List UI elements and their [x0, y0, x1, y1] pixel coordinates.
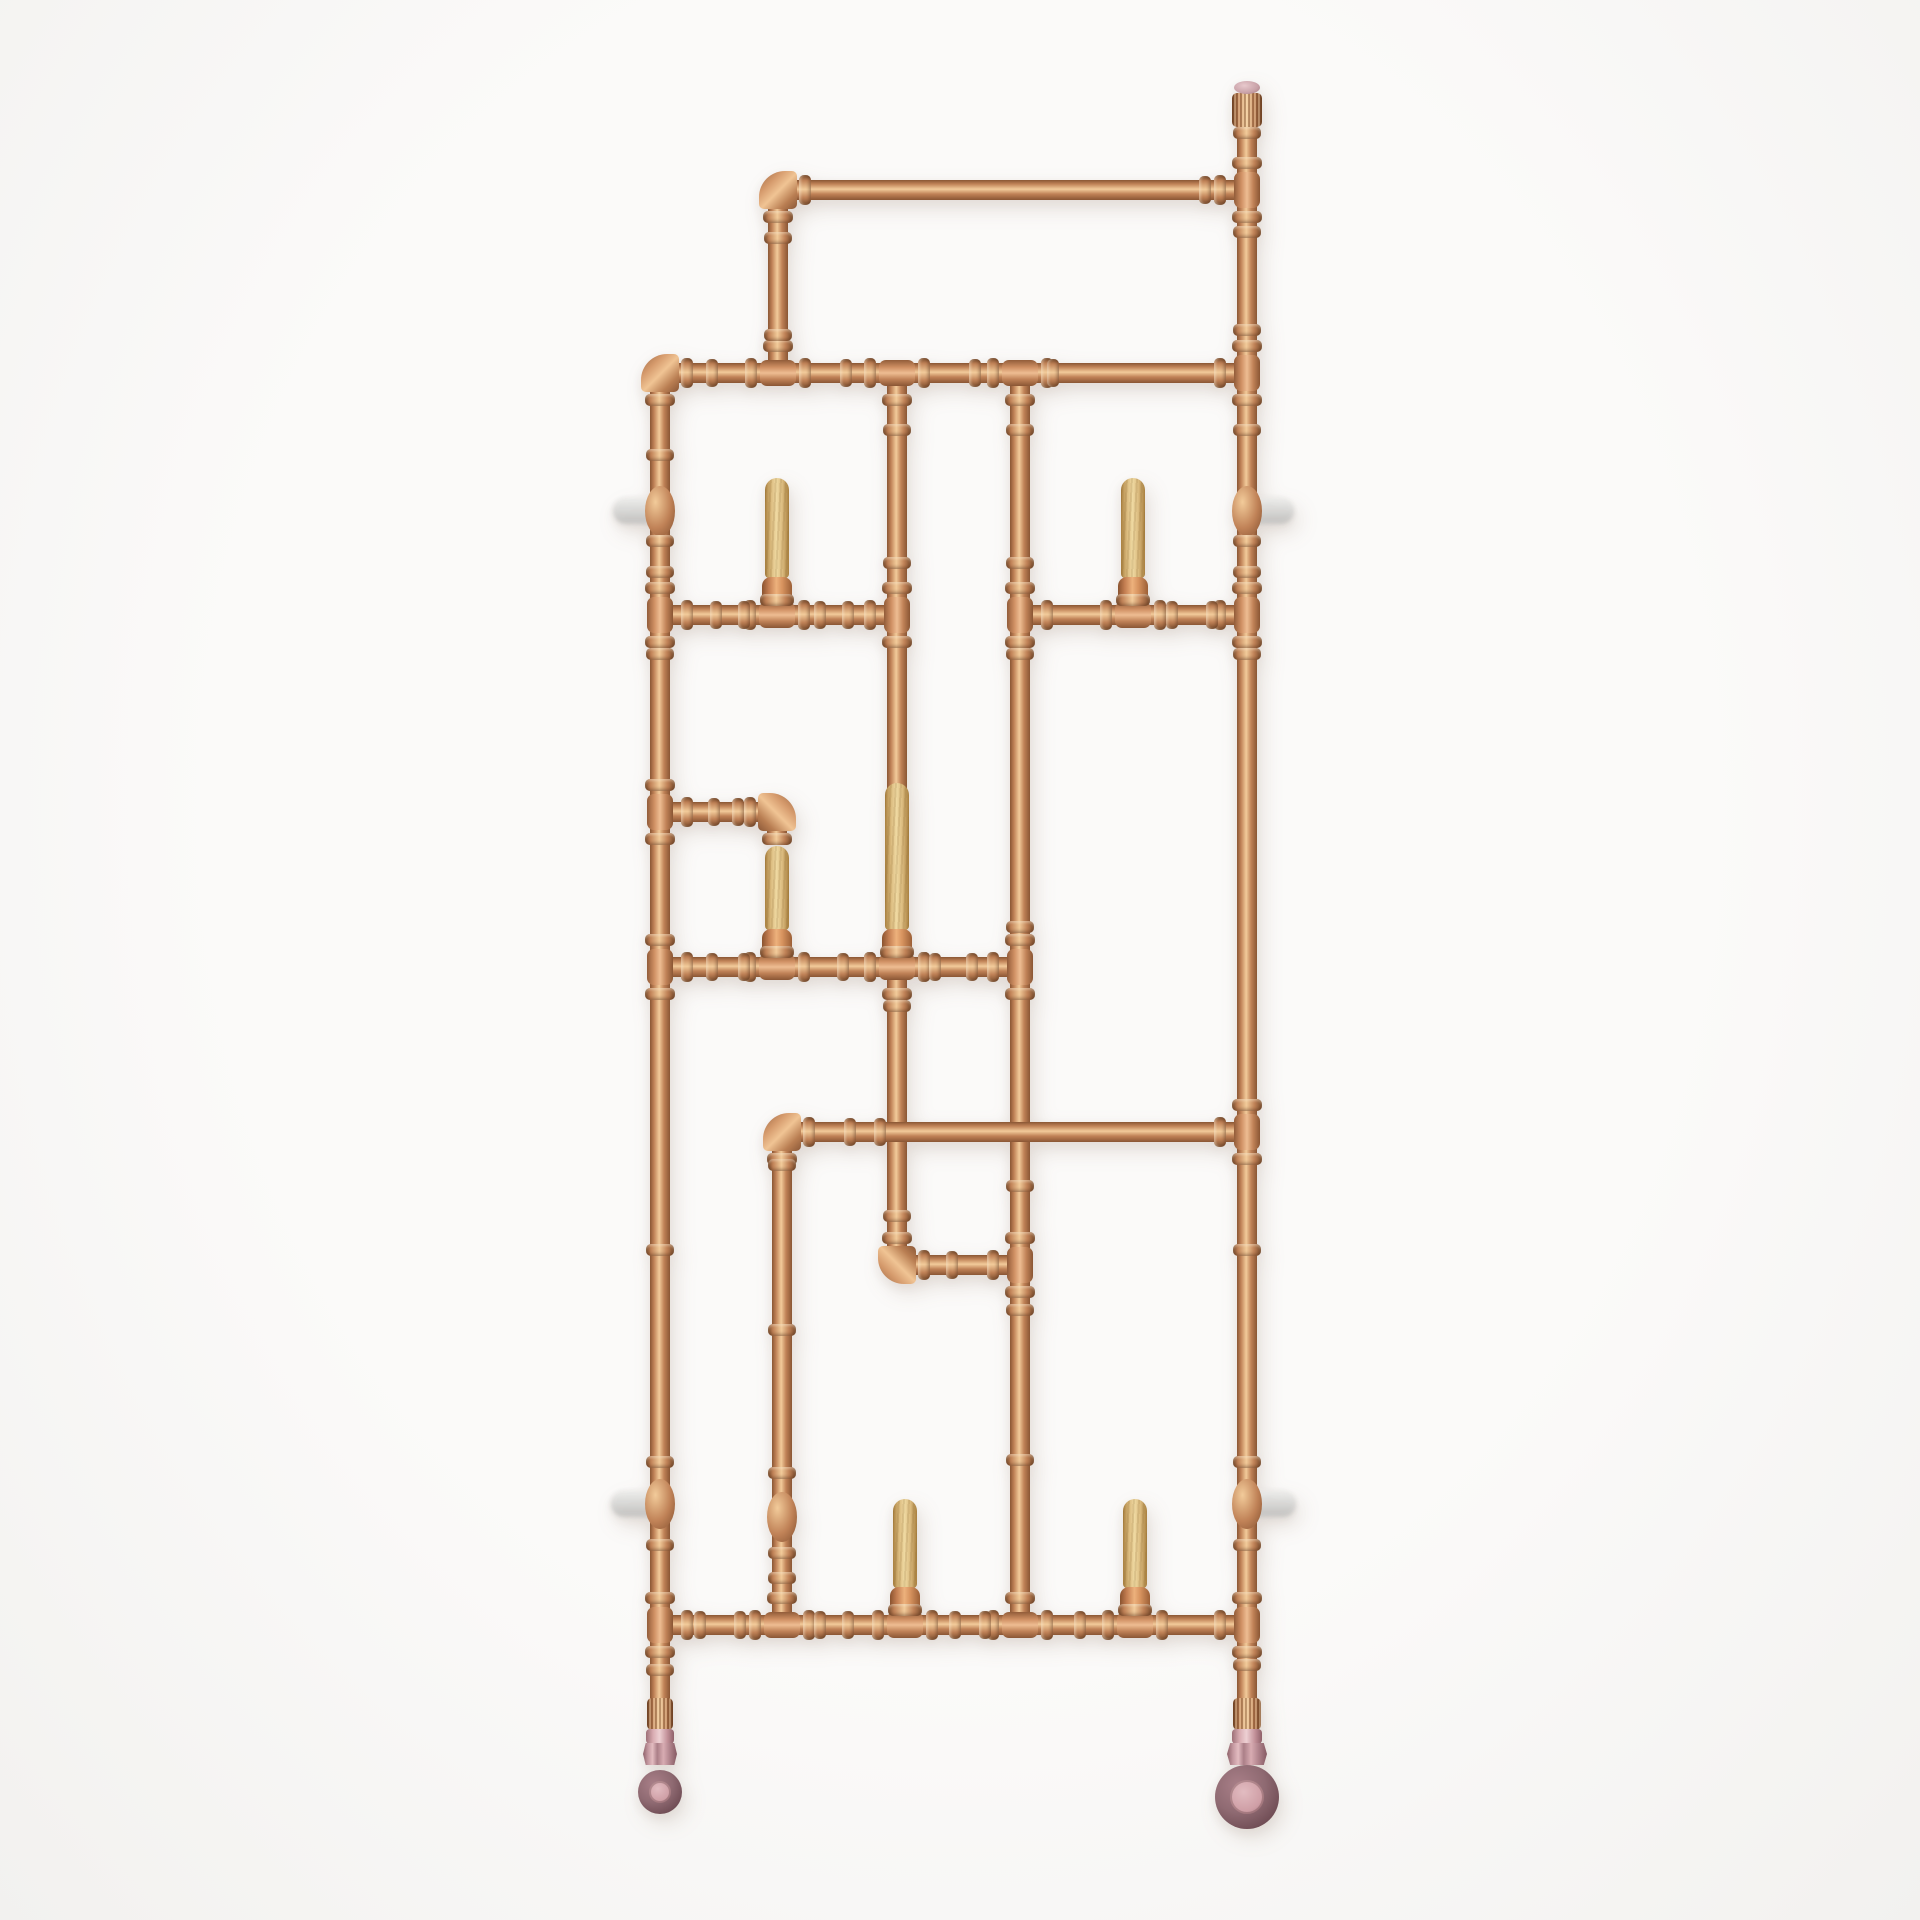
press-coupler [842, 1611, 854, 1639]
press-coupler [768, 1467, 796, 1479]
press-coupler [1233, 648, 1261, 660]
press-coupler [1006, 648, 1034, 660]
press-coupler [969, 359, 981, 387]
press-fitting-ring [882, 394, 912, 406]
press-fitting-ring [1214, 1610, 1226, 1640]
press-fitting-ring [1214, 1117, 1226, 1147]
pipe-elbow [641, 354, 679, 392]
pipe-tee [1007, 597, 1033, 633]
press-fitting-ring [681, 797, 693, 827]
press-fitting-ring [882, 1232, 912, 1244]
press-coupler [1233, 1456, 1261, 1468]
press-coupler [646, 449, 674, 461]
press-fitting-ring [749, 1610, 761, 1640]
press-fitting-ring [762, 833, 792, 845]
pipe-tee [647, 1607, 673, 1643]
press-fitting-ring [763, 211, 793, 223]
caster-collar [646, 1729, 674, 1744]
press-fitting-ring [1005, 582, 1035, 594]
press-coupler [1233, 127, 1261, 139]
press-coupler [883, 1000, 911, 1012]
press-fitting-ring [799, 358, 811, 388]
press-coupler [1006, 1454, 1034, 1466]
pipe-tee [879, 360, 915, 386]
press-fitting-ring [864, 952, 876, 982]
press-coupler [883, 557, 911, 569]
pipe-tee [764, 1612, 800, 1638]
press-coupler [706, 359, 718, 387]
press-coupler [710, 601, 722, 629]
press-coupler [1166, 601, 1178, 629]
caster-stem [647, 1698, 673, 1730]
press-coupler [837, 953, 849, 981]
press-coupler [842, 601, 854, 629]
press-fitting-ring [1005, 636, 1035, 648]
press-coupler [738, 953, 750, 981]
peg-socket-ring [1118, 1604, 1152, 1616]
pipe-end-cap [1234, 81, 1260, 94]
pipe-tee [1234, 1114, 1260, 1150]
press-coupler [883, 424, 911, 436]
press-fitting-ring [744, 797, 756, 827]
press-fitting-ring [1005, 1232, 1035, 1244]
press-fitting-ring [1232, 1153, 1262, 1165]
press-fitting-ring [1232, 1099, 1262, 1111]
press-fitting-ring [1214, 358, 1226, 388]
pipe-elbow [759, 171, 797, 209]
press-coupler [1233, 1539, 1261, 1551]
pipe-tee [647, 949, 673, 985]
press-coupler [1006, 557, 1034, 569]
press-fitting-ring [882, 582, 912, 594]
press-coupler [979, 1611, 991, 1639]
press-fitting-ring [767, 1592, 797, 1604]
press-coupler [946, 1251, 958, 1279]
press-fitting-ring [1232, 394, 1262, 406]
press-coupler [646, 1664, 674, 1676]
wooden-peg [1121, 478, 1145, 578]
pipe-tee [1007, 949, 1033, 985]
press-coupler [768, 1547, 796, 1559]
pipe-tee [1234, 172, 1260, 208]
press-fitting-ring [1156, 1610, 1168, 1640]
pipe-tee [760, 360, 796, 386]
press-coupler [1233, 424, 1261, 436]
caster-hub [649, 1781, 671, 1803]
press-fitting-ring [681, 600, 693, 630]
press-fitting-ring [1232, 636, 1262, 648]
pipe-tee [647, 597, 673, 633]
press-fitting-ring [645, 582, 675, 594]
press-fitting-ring [645, 636, 675, 648]
press-coupler [1006, 424, 1034, 436]
press-fitting-ring [1214, 175, 1226, 205]
press-coupler [734, 1611, 746, 1639]
press-coupler [646, 1244, 674, 1256]
press-fitting-ring [645, 988, 675, 1000]
press-fitting-ring [1005, 1286, 1035, 1298]
pipe-elbow [763, 1113, 801, 1151]
press-coupler [646, 1539, 674, 1551]
press-fitting-ring [1232, 1646, 1262, 1658]
press-fitting-ring [681, 358, 693, 388]
press-fitting-ring [681, 1610, 693, 1640]
pipe-tee [1007, 1247, 1033, 1283]
press-fitting-ring [763, 340, 793, 352]
press-fitting-ring [1232, 582, 1262, 594]
wooden-peg [765, 478, 789, 578]
press-fitting-ring [1005, 394, 1035, 406]
press-fitting-ring [645, 1592, 675, 1604]
press-fitting-ring [1232, 1592, 1262, 1604]
press-fitting-ring [918, 1250, 930, 1280]
press-fitting-ring [1005, 988, 1035, 1000]
press-coupler [768, 1572, 796, 1584]
press-fitting-ring [926, 1610, 938, 1640]
wooden-peg [893, 1499, 917, 1588]
press-fitting-ring [918, 358, 930, 388]
press-coupler [646, 1456, 674, 1468]
pipe-tee [884, 597, 910, 633]
press-coupler [1233, 535, 1261, 547]
press-fitting-ring [987, 1250, 999, 1280]
press-coupler [814, 1611, 826, 1639]
product-photo [0, 0, 1920, 1920]
press-fitting-ring [872, 1610, 884, 1640]
press-coupler [646, 648, 674, 660]
press-coupler [929, 953, 941, 981]
pipe-tee [1002, 360, 1038, 386]
press-fitting-ring [864, 600, 876, 630]
peg-socket-ring [760, 594, 794, 606]
press-fitting-ring [681, 952, 693, 982]
pipe-tee [1234, 1607, 1260, 1643]
press-coupler [1233, 226, 1261, 238]
wooden-peg [765, 846, 789, 930]
caster-collar [1232, 1729, 1262, 1744]
pipe-end-fitting [1232, 93, 1262, 127]
caster-hub [1230, 1780, 1264, 1814]
press-fitting-ring [987, 952, 999, 982]
caster-stem [1233, 1698, 1261, 1730]
press-fitting-ring [1232, 157, 1262, 169]
press-coupler [764, 232, 792, 244]
press-fitting-ring [645, 779, 675, 791]
press-fitting-ring [1041, 1610, 1053, 1640]
press-fitting-ring [882, 636, 912, 648]
press-fitting-ring [1232, 340, 1262, 352]
press-coupler [949, 1611, 961, 1639]
press-fitting-ring [987, 358, 999, 388]
peg-socket-ring [888, 1604, 922, 1616]
press-coupler [646, 566, 674, 578]
peg-socket-ring [880, 946, 914, 958]
press-fitting-ring [1041, 600, 1053, 630]
wall-mount-fitting [645, 1479, 675, 1529]
pipe-elbow [758, 793, 796, 831]
caster-nut [643, 1743, 677, 1765]
press-coupler [1233, 324, 1261, 336]
press-fitting-ring [1232, 211, 1262, 223]
press-fitting-ring [864, 358, 876, 388]
press-coupler [1047, 359, 1059, 387]
press-fitting-ring [1005, 934, 1035, 946]
press-fitting-ring [1154, 600, 1166, 630]
press-fitting-ring [745, 358, 757, 388]
press-coupler [1206, 601, 1218, 629]
press-coupler [1074, 1611, 1086, 1639]
press-coupler [1233, 1659, 1261, 1671]
press-coupler [1102, 1611, 1114, 1639]
press-coupler [1233, 1244, 1261, 1256]
press-fitting-ring [645, 833, 675, 845]
peg-socket-ring [1116, 594, 1150, 606]
press-coupler [844, 1118, 856, 1146]
wall-mount-fitting [767, 1492, 797, 1542]
press-fitting-ring [882, 988, 912, 1000]
press-coupler [768, 1159, 796, 1171]
press-coupler [966, 953, 978, 981]
press-coupler [1006, 1180, 1034, 1192]
press-coupler [706, 953, 718, 981]
pipe-horizontal [778, 180, 1247, 200]
press-coupler [814, 601, 826, 629]
wall-mount-fitting [1232, 486, 1262, 536]
press-coupler [840, 359, 852, 387]
wall-mount-fitting [645, 486, 675, 536]
press-coupler [1006, 1304, 1034, 1316]
press-coupler [1006, 921, 1034, 933]
caster-nut [1227, 1743, 1267, 1765]
pipe-tee [1002, 1612, 1038, 1638]
pipe-tee [647, 794, 673, 830]
press-coupler [874, 1118, 886, 1146]
press-coupler [764, 329, 792, 341]
press-fitting-ring [645, 1646, 675, 1658]
press-fitting-ring [799, 175, 811, 205]
press-fitting-ring [1100, 600, 1112, 630]
wooden-peg [885, 783, 909, 930]
press-coupler [708, 798, 720, 826]
wooden-peg [1123, 1499, 1147, 1588]
press-coupler [768, 1324, 796, 1336]
pipe-tee [1234, 355, 1260, 391]
press-coupler [883, 1210, 911, 1222]
press-coupler [646, 535, 674, 547]
press-fitting-ring [803, 1117, 815, 1147]
press-coupler [694, 1611, 706, 1639]
pipe-coat-rack [0, 0, 1920, 1920]
press-fitting-ring [645, 934, 675, 946]
press-fitting-ring [645, 394, 675, 406]
wall-mount-fitting [1232, 1479, 1262, 1529]
pipe-elbow [878, 1246, 916, 1284]
press-fitting-ring [798, 600, 810, 630]
press-coupler [1233, 566, 1261, 578]
pipe-tee [1234, 597, 1260, 633]
press-coupler [738, 601, 750, 629]
press-coupler [732, 798, 744, 826]
press-fitting-ring [1005, 1592, 1035, 1604]
peg-socket-ring [760, 946, 794, 958]
press-coupler [1199, 176, 1211, 204]
press-fitting-ring [798, 952, 810, 982]
